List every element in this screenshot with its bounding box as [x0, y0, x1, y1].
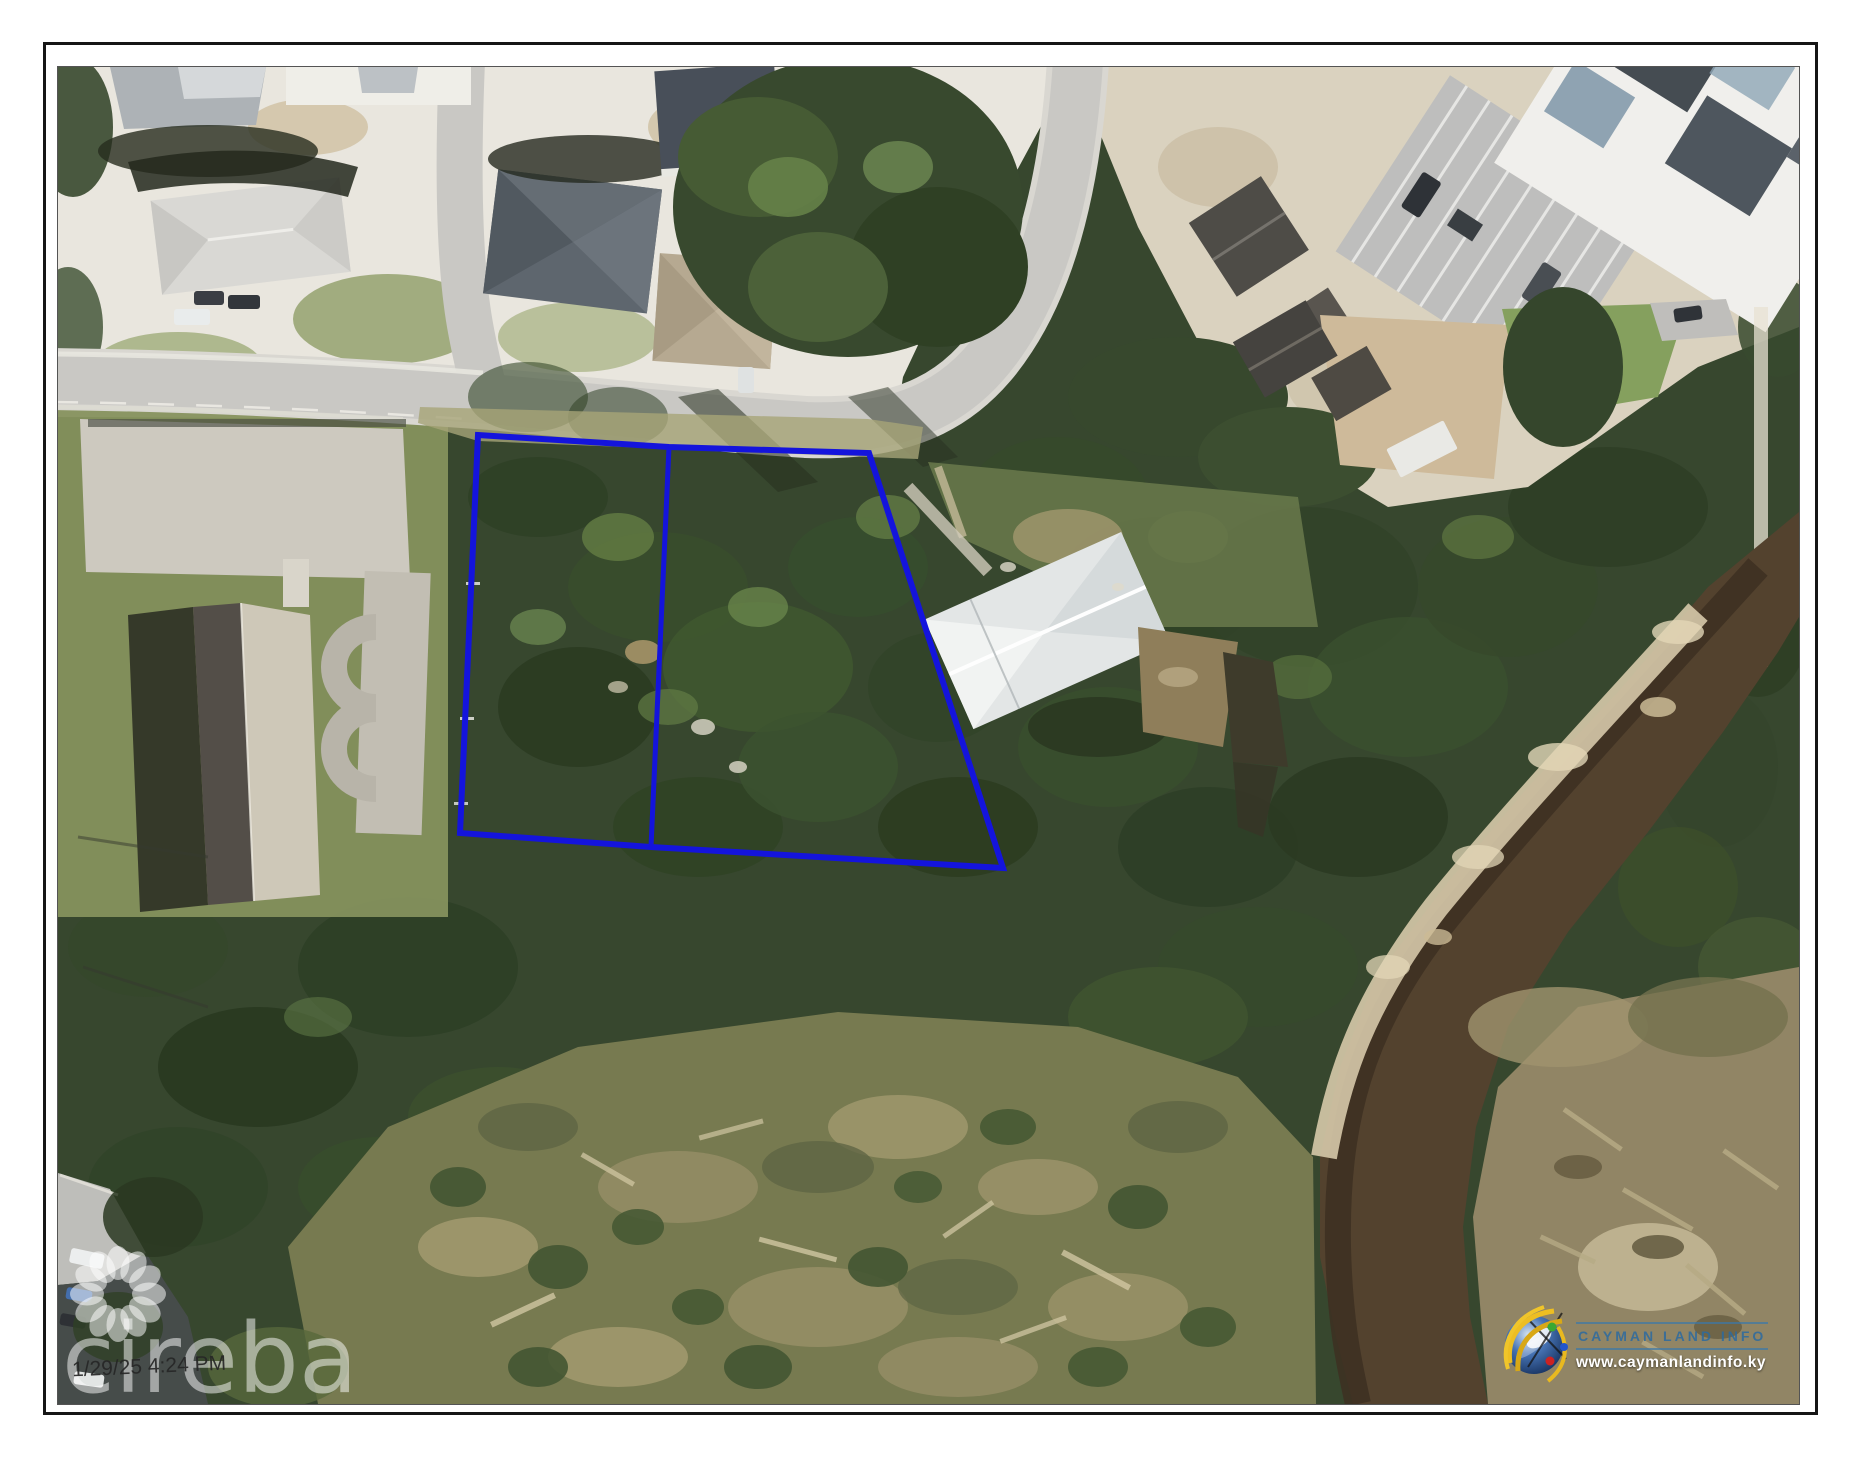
photo-haze [58, 67, 1799, 1404]
aerial-photo: cireba 1/29/25 4:24 PM [57, 66, 1800, 1405]
aerial-photo-canvas [58, 67, 1799, 1404]
screenshot: cireba 1/29/25 4:24 PM [0, 0, 1860, 1458]
